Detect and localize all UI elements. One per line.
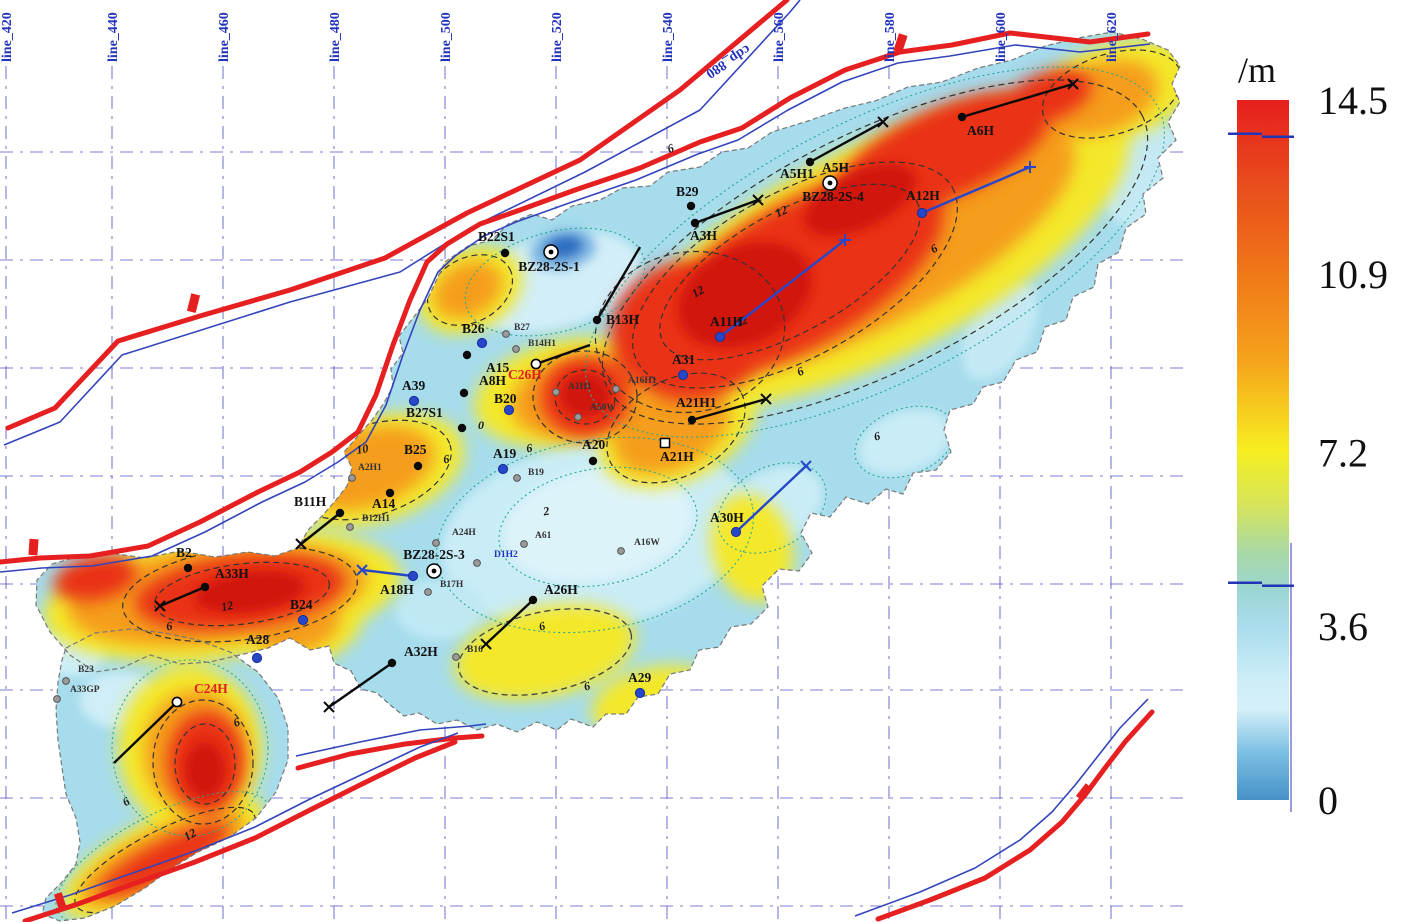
well-marker-black — [688, 416, 696, 424]
well-label: A5H — [822, 160, 849, 175]
well-label: A32H — [404, 644, 438, 659]
grid-line-label: line_620 — [1105, 12, 1120, 62]
well-marker-black — [336, 509, 344, 517]
well-label: BZ28-2S-3 — [403, 547, 465, 562]
well-label: B20 — [494, 391, 517, 406]
colorbar-tick-label: 7.2 — [1318, 430, 1368, 475]
well-label: A8H — [479, 373, 506, 388]
well-label: A20 — [582, 437, 605, 452]
well-label: B26 — [462, 321, 485, 336]
well-label: A11H — [710, 314, 744, 329]
well-marker-blue — [477, 338, 486, 347]
well-label: A39 — [402, 378, 425, 393]
well-label: A24H — [452, 528, 476, 538]
well-label: B13H — [606, 312, 640, 327]
well-marker-black — [529, 596, 537, 604]
well-label: B11H — [294, 494, 327, 509]
well-label: A30H — [710, 510, 744, 525]
well-label: A29 — [628, 670, 651, 685]
well-marker-blue — [408, 571, 417, 580]
well-label: B19 — [528, 468, 544, 478]
well-label: A1H1 — [568, 382, 592, 392]
well-label: A50W — [590, 403, 616, 413]
well-marker-black — [460, 389, 468, 397]
well-label: A16H1 — [628, 376, 657, 386]
well-label: A26H — [544, 582, 578, 597]
well-marker-black — [463, 351, 471, 359]
grid-line-label: line_540 — [661, 12, 676, 62]
well-marker-gray — [347, 524, 354, 531]
well-label: BZ28-2S-4 — [802, 189, 864, 204]
well-label: A21H1 — [676, 395, 717, 410]
isopach-map-figure: 6121212666066210661266126 B29A3HA5H1A5HB… — [0, 0, 1405, 922]
well-marker-blue — [731, 527, 740, 536]
well-marker-gray — [63, 678, 70, 685]
colorbar-tick-label: 0 — [1318, 778, 1338, 823]
well-marker-blue — [409, 396, 418, 405]
well-marker-gray — [474, 560, 481, 567]
well-label: B12H1 — [362, 514, 390, 524]
well-marker-blue — [678, 370, 687, 379]
well-marker-blue — [498, 464, 507, 473]
well-label: A19 — [493, 446, 516, 461]
well-label: C26H — [508, 367, 542, 382]
well-marker-gray — [503, 331, 510, 338]
well-label: A33GP — [70, 685, 100, 695]
contour-value-label: 0 — [478, 418, 484, 432]
well-label: A14 — [372, 496, 395, 511]
well-label: B17H — [440, 580, 464, 590]
well-marker-bullseye-center — [432, 569, 437, 574]
well-marker-blue — [635, 688, 644, 697]
well-marker-gray — [349, 475, 356, 482]
well-marker-black — [691, 219, 699, 227]
well-label: B27 — [514, 323, 530, 333]
well-marker-black — [458, 424, 466, 432]
grid-line-label: line_580 — [883, 12, 898, 62]
well-label: B25 — [404, 442, 427, 457]
colorbar-tick-label: 3.6 — [1318, 604, 1368, 649]
well-marker-gray — [513, 346, 520, 353]
well-label: A33H — [215, 566, 249, 581]
well-marker-blue — [298, 615, 307, 624]
well-label: B14H1 — [528, 339, 556, 349]
well-marker-gray — [514, 475, 521, 482]
well-label: A5H1 — [780, 166, 814, 181]
well-marker-black — [388, 659, 396, 667]
well-marker-blue — [917, 208, 926, 217]
well-marker-gray — [54, 696, 61, 703]
grid-line-label: line_480 — [328, 12, 343, 62]
well-label: B29 — [676, 184, 699, 199]
well-label: B27S1 — [406, 405, 443, 420]
grid-line-label: line_440 — [106, 12, 121, 62]
well-marker-gray — [433, 540, 440, 547]
map-canvas: 6121212666066210661266126 B29A3HA5H1A5HB… — [0, 0, 1405, 922]
well-label: B16 — [467, 645, 483, 655]
colorbar-tick-label: 14.5 — [1318, 78, 1388, 123]
well-label: BZ28-2S-1 — [518, 259, 580, 274]
well-label: A61 — [535, 531, 552, 541]
well-marker-black — [184, 564, 192, 572]
grid-line-label: line_500 — [439, 12, 454, 62]
well-marker-gray — [425, 589, 432, 596]
well-label: A18H — [380, 582, 414, 597]
well-label: A31 — [672, 352, 695, 367]
well-marker-bullseye-center — [549, 250, 554, 255]
well-marker-gray — [453, 654, 460, 661]
colorbar-unit-label: /m — [1238, 50, 1276, 90]
well-A5H: A5H — [822, 160, 849, 175]
well-label: B23 — [78, 665, 94, 675]
well-label: A21H — [660, 449, 694, 464]
well-marker-bullseye-center — [828, 181, 833, 186]
well-label: A28 — [246, 632, 269, 647]
colorbar-gradient-bar — [1237, 100, 1289, 800]
well-marker-blue — [715, 332, 724, 341]
well-marker-black — [958, 113, 966, 121]
grid-line-label: line_420 — [0, 12, 15, 62]
well-marker-black — [589, 457, 597, 465]
well-marker-gray — [618, 548, 625, 555]
well-marker-gray — [521, 541, 528, 548]
well-marker-gray — [553, 389, 560, 396]
well-label: A2H1 — [358, 463, 382, 473]
grid-line-label: line_520 — [550, 12, 565, 62]
well-label: A6H — [967, 123, 994, 138]
well-marker-blue — [504, 405, 513, 414]
colorbar-tick-label: 10.9 — [1318, 252, 1388, 297]
well-marker-black — [501, 249, 509, 257]
grid-line-label: line_560 — [772, 12, 787, 62]
well-marker-gray — [613, 386, 620, 393]
well-label: B24 — [290, 597, 313, 612]
well-label: C24H — [194, 681, 228, 696]
well-marker-black — [201, 583, 209, 591]
well-marker-open-square — [661, 439, 670, 448]
well-marker-black — [806, 158, 814, 166]
well-label: B2 — [176, 545, 192, 560]
well-marker-gray — [575, 414, 582, 421]
well-marker-black — [414, 462, 422, 470]
well-label: D1H2 — [494, 550, 518, 560]
well-marker-blue — [252, 653, 261, 662]
well-label: B22S1 — [478, 229, 515, 244]
contour-value-label: 10 — [355, 441, 369, 457]
grid-line-label: line_600 — [994, 12, 1009, 62]
well-label: A3H — [690, 228, 717, 243]
well-label: A16W — [634, 538, 660, 548]
well-marker-white — [172, 697, 181, 706]
well-label: A12H — [906, 188, 940, 203]
well-marker-black — [593, 316, 601, 324]
grid-line-label: line_460 — [217, 12, 232, 62]
well-marker-black — [687, 202, 695, 210]
